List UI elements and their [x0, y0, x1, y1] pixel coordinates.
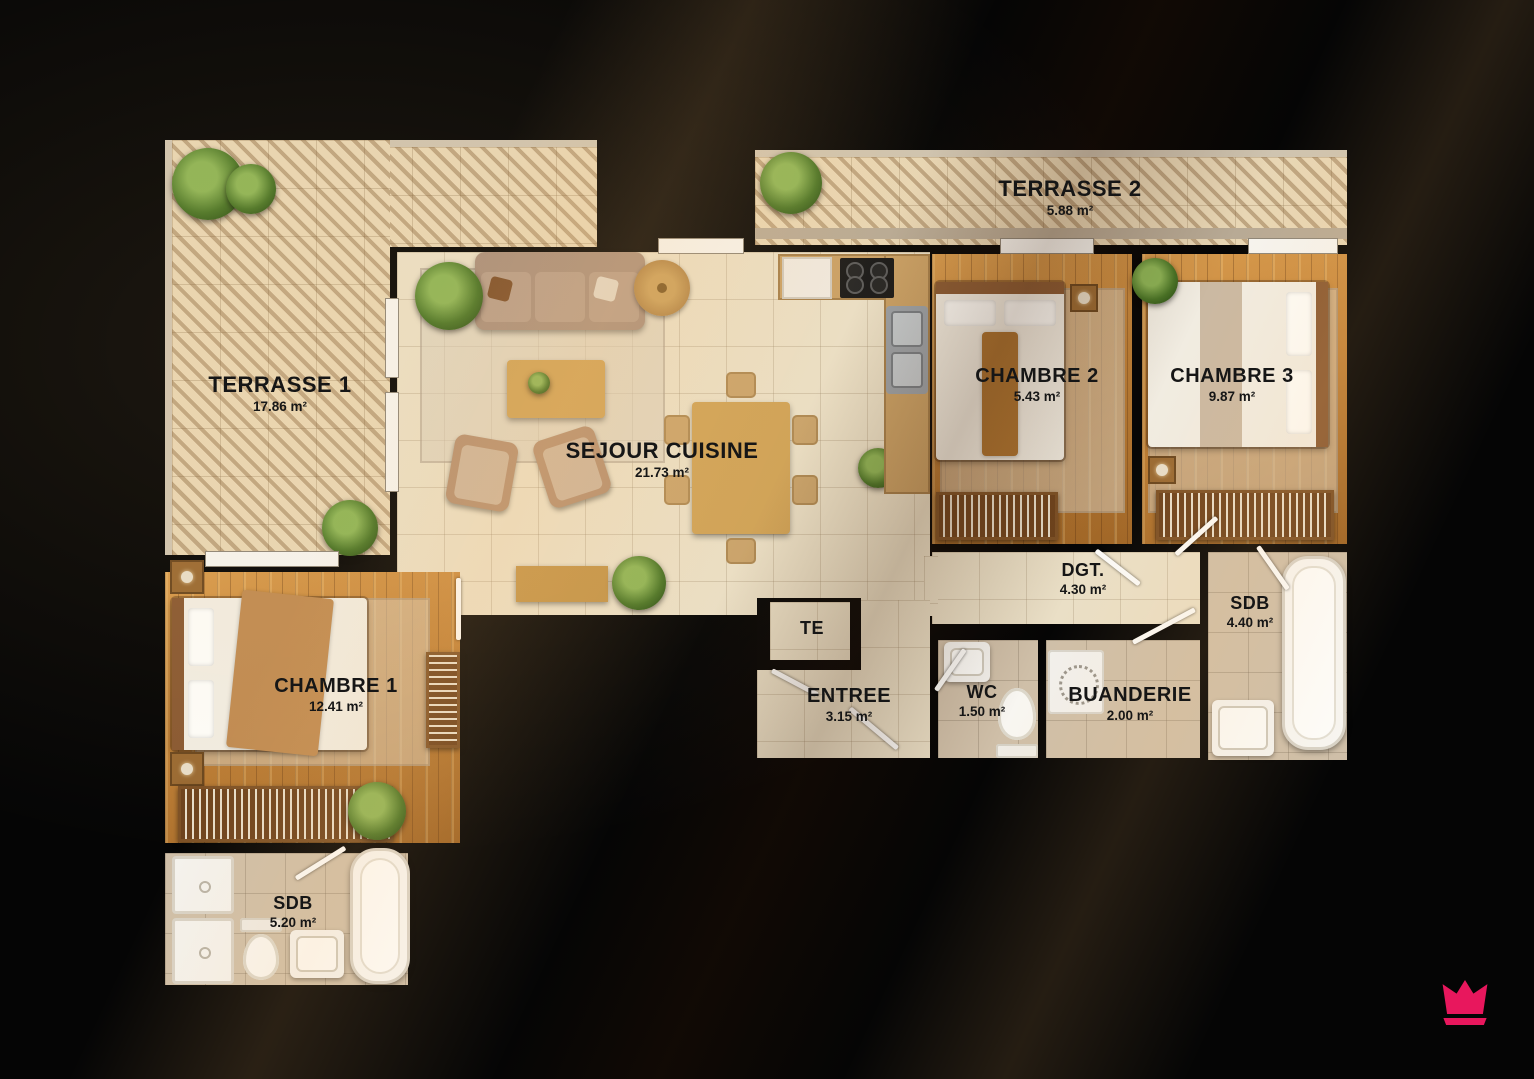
- chambre2-bookshelf: [936, 492, 1058, 540]
- room-area: 4.30 m²: [1060, 582, 1107, 597]
- entree-label: ENTREE 3.15 m²: [807, 685, 891, 724]
- chambre2-nightstand: [1070, 284, 1098, 312]
- kitchen-cabinet: [782, 257, 832, 299]
- chambre1-wardrobe: [426, 652, 460, 748]
- window-chambre2-terrace: [1000, 238, 1094, 254]
- floor-plan: TERRASSE 1 17.86 m² TERRASSE 2 5.88 m² S…: [0, 0, 1534, 1079]
- living-floor-plant: [612, 556, 666, 610]
- room-area: 4.40 m²: [1227, 615, 1274, 630]
- room-name: DGT.: [1060, 560, 1107, 581]
- room-name: BUANDERIE: [1068, 684, 1191, 707]
- pillow: [1004, 300, 1056, 326]
- chambre1-nightstand: [170, 560, 204, 594]
- terrace2-palm: [760, 152, 822, 214]
- burner: [870, 276, 888, 294]
- cooktop: [840, 258, 894, 298]
- terrace1-bush: [226, 164, 276, 214]
- chambre1-nightstand: [170, 752, 204, 786]
- sink-basin: [891, 352, 923, 388]
- pillow: [944, 300, 996, 326]
- sdb-left-sink: [290, 930, 344, 978]
- living-palm-plant: [415, 262, 483, 330]
- chambre1-bed: [172, 598, 367, 750]
- room-name: TE: [800, 618, 824, 639]
- window-terrace1-sejour-a: [385, 298, 399, 378]
- sdb-left-shower-tray: [172, 918, 234, 984]
- ceiling-fan: [634, 260, 690, 316]
- room-area: 3.15 m²: [807, 709, 891, 724]
- chambre3-plant: [1132, 258, 1178, 304]
- chambre1-door: [456, 578, 461, 640]
- armchair: [444, 433, 519, 513]
- sdb-right-label: SDB 4.40 m²: [1227, 593, 1274, 630]
- dgt-label: DGT. 4.30 m²: [1060, 560, 1107, 597]
- toilet-tank: [996, 744, 1038, 758]
- sink-basin: [891, 311, 923, 347]
- coffee-table-plant: [528, 372, 550, 394]
- window-chambre1-terrace: [205, 551, 339, 567]
- room-name: WC: [959, 682, 1006, 703]
- terrasse1-label: TERRASSE 1 17.86 m²: [208, 372, 351, 414]
- room-area: 5.43 m²: [975, 389, 1098, 404]
- chambre1-plant: [348, 782, 406, 840]
- chambre1-label: CHAMBRE 1 12.41 m²: [274, 675, 397, 714]
- room-area: 2.00 m²: [1068, 708, 1191, 723]
- pillow: [1286, 292, 1312, 356]
- kitchen-sink: [886, 306, 928, 394]
- te-label: TE: [800, 618, 824, 639]
- room-name: CHAMBRE 2: [975, 365, 1098, 388]
- sejour-label: SEJOUR CUISINE 21.73 m²: [566, 438, 759, 480]
- burner: [846, 276, 864, 294]
- headboard: [1316, 282, 1328, 447]
- headboard: [936, 282, 1064, 294]
- room-name: CHAMBRE 1: [274, 675, 397, 698]
- dining-chair: [726, 538, 756, 564]
- terrasse2-label: TERRASSE 2 5.88 m²: [998, 176, 1141, 218]
- pillow: [188, 608, 214, 666]
- blanket: [226, 590, 334, 757]
- sdb-left-bathtub: [350, 848, 410, 984]
- headboard: [172, 598, 184, 750]
- room-name: CHAMBRE 3: [1170, 365, 1293, 388]
- room-area: 21.73 m²: [566, 465, 759, 480]
- window-terrace1-sejour-b: [385, 392, 399, 492]
- room-area: 5.20 m²: [270, 915, 317, 930]
- desk: [516, 566, 608, 602]
- wc-sink: [944, 642, 990, 682]
- chambre3-nightstand: [1148, 456, 1176, 484]
- window-chambre3-terrace: [1248, 238, 1338, 254]
- chambre3-label: CHAMBRE 3 9.87 m²: [1170, 365, 1293, 404]
- room-name: ENTREE: [807, 685, 891, 708]
- room-name: TERRASSE 1: [208, 372, 351, 398]
- room-area: 5.88 m²: [998, 203, 1141, 218]
- room-name: SDB: [1227, 593, 1274, 614]
- window-sejour-top: [658, 238, 744, 254]
- wc-label: WC 1.50 m²: [959, 682, 1006, 719]
- sdb-right-sink: [1212, 700, 1274, 756]
- crown-logo: [1437, 980, 1493, 1028]
- room-area: 1.50 m²: [959, 704, 1006, 719]
- dining-chair: [792, 475, 818, 505]
- sdb-right-bathtub: [1282, 556, 1346, 750]
- sdb-left-label: SDB 5.20 m²: [270, 893, 317, 930]
- crown-icon: [1437, 980, 1493, 1014]
- sdb-left-shower: [172, 856, 234, 914]
- sofa: [475, 252, 645, 330]
- chambre2-label: CHAMBRE 2 5.43 m²: [975, 365, 1098, 404]
- pillow: [188, 680, 214, 738]
- coffee-table: [507, 360, 605, 418]
- room-area: 9.87 m²: [1170, 389, 1293, 404]
- armchair-seat: [453, 444, 510, 506]
- sofa-cushion: [535, 272, 585, 322]
- toilet-bowl: [243, 934, 279, 980]
- room-area: 17.86 m²: [208, 399, 351, 414]
- chambre3-bookshelf: [1156, 490, 1334, 540]
- terrace1-edge-plant: [322, 500, 378, 556]
- buanderie-label: BUANDERIE 2.00 m²: [1068, 684, 1191, 723]
- dining-chair: [792, 415, 818, 445]
- dining-chair: [726, 372, 756, 398]
- room-name: SDB: [270, 893, 317, 914]
- room-name: TERRASSE 2: [998, 176, 1141, 202]
- room-name: SEJOUR CUISINE: [566, 438, 759, 464]
- room-area: 12.41 m²: [274, 699, 397, 714]
- crown-bar: [1442, 1018, 1488, 1025]
